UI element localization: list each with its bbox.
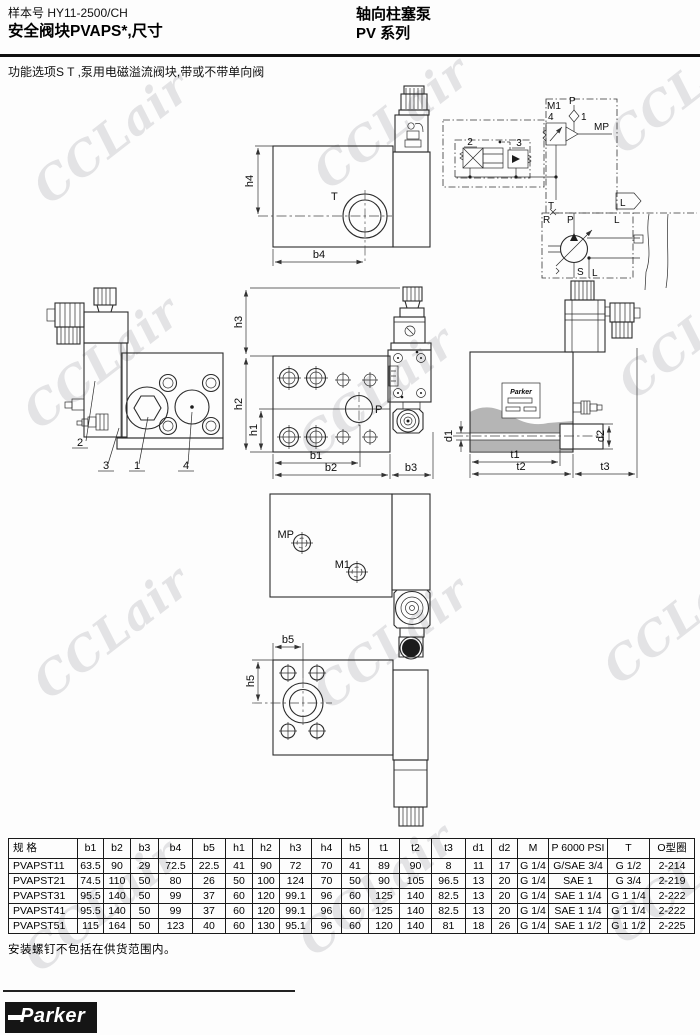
column-header: t2 [400, 839, 432, 859]
table-cell: G 3/4 [608, 874, 650, 889]
table-cell: PVAPST21 [9, 874, 78, 889]
dim-label-h5: h5 [245, 675, 257, 687]
column-header: h3 [280, 839, 312, 859]
column-header: h2 [253, 839, 280, 859]
table-cell: 140 [104, 904, 131, 919]
nameplate-brand: Parker [510, 389, 533, 396]
table-cell: 96 [312, 919, 342, 934]
table-cell: 70 [312, 859, 342, 874]
dim-label-h3: h3 [233, 316, 245, 328]
table-cell: 120 [369, 919, 400, 934]
table-cell: PVAPST31 [9, 889, 78, 904]
schematic-label-mp: MP [594, 122, 609, 133]
column-header: t3 [432, 839, 466, 859]
table-cell: 105 [400, 874, 432, 889]
schematic-label-3: 3 [516, 138, 522, 149]
table-cell: 20 [492, 904, 518, 919]
table-cell: 11 [466, 859, 492, 874]
table-cell: 110 [104, 874, 131, 889]
mounting-note: 安装螺钉不包括在供货范围内。 [8, 941, 176, 957]
table-cell: 50 [131, 889, 159, 904]
table-cell: 26 [193, 874, 226, 889]
table-cell: 70 [312, 874, 342, 889]
dim-label-d2: d2 [595, 430, 607, 442]
table-cell: 60 [342, 889, 369, 904]
table-row: PVAPST1163.5902972.522.54190727041899081… [9, 859, 695, 874]
dim-label-b5: b5 [282, 634, 294, 646]
table-cell: 2-225 [650, 919, 695, 934]
schematic-label-1: 1 [581, 112, 587, 123]
table-cell: 164 [104, 919, 131, 934]
dim-label-t1: t1 [510, 449, 519, 461]
table-cell: 120 [253, 889, 280, 904]
table-cell: 90 [369, 874, 400, 889]
column-header: T [608, 839, 650, 859]
dim-label-h2: h2 [233, 398, 245, 410]
table-cell: 125 [369, 904, 400, 919]
table-cell: 99 [159, 904, 193, 919]
table-cell: 81 [432, 919, 466, 934]
table-cell: 125 [369, 889, 400, 904]
footer-rule [3, 990, 295, 992]
table-cell: 140 [104, 889, 131, 904]
table-cell: 20 [492, 874, 518, 889]
table-cell: 74.5 [78, 874, 104, 889]
table-cell: G 1/4 [518, 919, 549, 934]
table-cell: SAE 1 1/4 [549, 904, 608, 919]
callout-label-3: 3 [103, 460, 109, 472]
table-cell: 99.1 [280, 904, 312, 919]
table-cell: 99 [159, 889, 193, 904]
table-cell: 63.5 [78, 859, 104, 874]
table-cell: G/SAE 3/4 [549, 859, 608, 874]
table-cell: 100 [253, 874, 280, 889]
table-cell: SAE 1 1/4 [549, 889, 608, 904]
table-cell: 140 [400, 904, 432, 919]
schematic-label-p2: P [567, 215, 574, 226]
schematic-label-l3: L [592, 268, 598, 279]
table-cell: 90 [253, 859, 280, 874]
page-title: 安全阀块PVAPS*,尺寸 [8, 19, 163, 41]
column-header: h5 [342, 839, 369, 859]
table-cell: 123 [159, 919, 193, 934]
table-cell: 41 [342, 859, 369, 874]
table-cell: 50 [226, 874, 253, 889]
table-cell: G 1/2 [608, 859, 650, 874]
table-cell: 18 [466, 919, 492, 934]
column-header: O型圈 [650, 839, 695, 859]
table-cell: SAE 1 1/2 [549, 919, 608, 934]
table-row: PVAPST2174.51105080265010012470509010596… [9, 874, 695, 889]
table-cell: 40 [193, 919, 226, 934]
schematic-label-s: S [577, 267, 584, 278]
callout-label-2: 2 [77, 437, 83, 449]
table-cell: 22.5 [193, 859, 226, 874]
table-cell: 82.5 [432, 904, 466, 919]
side-view-drawing: Parker d1 d2 t1 t2 t3 [443, 281, 640, 478]
table-cell: 95.5 [78, 904, 104, 919]
table-cell: 82.5 [432, 889, 466, 904]
table-cell: PVAPST11 [9, 859, 78, 874]
header-rule [0, 54, 700, 57]
table-cell: 72 [280, 859, 312, 874]
table-cell: 95.5 [78, 889, 104, 904]
table-cell: G 1/4 [518, 874, 549, 889]
table-cell: 13 [466, 874, 492, 889]
column-header: 规 格 [9, 839, 78, 859]
column-header: b3 [131, 839, 159, 859]
dim-label-h1: h1 [248, 424, 260, 436]
table-cell: G 1/4 [518, 859, 549, 874]
table-cell: 140 [400, 919, 432, 934]
center-view-drawing: P h3 h [233, 287, 433, 479]
table-cell: 99.1 [280, 889, 312, 904]
schematic-label-r: R [543, 215, 550, 226]
table-cell: 20 [492, 889, 518, 904]
column-header: b1 [78, 839, 104, 859]
table-row: PVAPST3195.51405099376012099.19660125140… [9, 889, 695, 904]
table-cell: G 1 1/4 [608, 889, 650, 904]
hydraulic-schematic: M1 P 1 4 MP 2 3 [443, 96, 697, 290]
table-cell: 90 [400, 859, 432, 874]
dim-label-h4: h4 [244, 175, 256, 187]
table-cell: 2-214 [650, 859, 695, 874]
dim-label-b2: b2 [325, 462, 337, 474]
column-header: t1 [369, 839, 400, 859]
table-cell: 130 [253, 919, 280, 934]
port-label-t: T [331, 191, 338, 203]
table-cell: PVAPST51 [9, 919, 78, 934]
table-cell: 60 [226, 919, 253, 934]
parker-logo: Parker [5, 1002, 97, 1033]
product-name: 轴向柱塞泵 [356, 3, 431, 24]
port-label-mp: MP [278, 529, 295, 541]
table-cell: 96 [312, 889, 342, 904]
catalog-page: CCLair CCLair CCLair CCLair CCLair CCLai… [0, 0, 700, 1035]
schematic-label-2: 2 [467, 137, 473, 148]
schematic-label-l2: L [614, 215, 620, 226]
table-cell: 90 [104, 859, 131, 874]
port-label-m1: M1 [335, 559, 350, 571]
table-cell: SAE 1 [549, 874, 608, 889]
table-cell: G 1 1/2 [608, 919, 650, 934]
table-cell: 140 [400, 889, 432, 904]
parker-logo-text: Parker [20, 1005, 85, 1028]
table-cell: G 1/4 [518, 889, 549, 904]
table-cell: 60 [226, 889, 253, 904]
table-cell: PVAPST41 [9, 904, 78, 919]
table-cell: 72.5 [159, 859, 193, 874]
table-cell: 80 [159, 874, 193, 889]
table-cell: 89 [369, 859, 400, 874]
table-cell: 50 [342, 874, 369, 889]
column-header: d1 [466, 839, 492, 859]
table-cell: 60 [342, 919, 369, 934]
table-cell: 50 [131, 874, 159, 889]
schematic-label-m1: M1 [547, 101, 561, 112]
table-cell: 41 [226, 859, 253, 874]
column-header: h4 [312, 839, 342, 859]
column-header: P 6000 PSI [549, 839, 608, 859]
dim-label-t2: t2 [516, 461, 525, 473]
table-cell: 124 [280, 874, 312, 889]
table-cell: 96 [312, 904, 342, 919]
port-label-p: P [375, 404, 382, 416]
table-cell: 26 [492, 919, 518, 934]
table-cell: G 1/4 [518, 904, 549, 919]
column-header: d2 [492, 839, 518, 859]
spec-table: 规 格b1b2b3b4b5h1h2h3h4h5t1t2t3d1d2MP 6000… [8, 838, 695, 934]
table-cell: 120 [253, 904, 280, 919]
table-cell: 60 [342, 904, 369, 919]
schematic-label-p: P [569, 96, 576, 107]
series-name: PV 系列 [356, 22, 410, 43]
column-header: h1 [226, 839, 253, 859]
bottom-view-drawing: b5 h5 [245, 634, 428, 826]
column-header: M [518, 839, 549, 859]
front-view-drawing: 2 3 1 4 [47, 288, 223, 472]
column-header: b5 [193, 839, 226, 859]
table-cell: 13 [466, 904, 492, 919]
table-row: PVAPST4195.51405099376012099.19660125140… [9, 904, 695, 919]
dim-label-b1: b1 [310, 450, 322, 462]
dim-label-b3: b3 [405, 462, 417, 474]
schematic-label-l-flag: L [620, 198, 626, 209]
table-cell: 13 [466, 889, 492, 904]
table-cell: 115 [78, 919, 104, 934]
column-header: b4 [159, 839, 193, 859]
top-view-drawing: T h4 b4 [244, 86, 430, 266]
table-cell: 2-222 [650, 904, 695, 919]
callout-label-4: 4 [183, 460, 189, 472]
table-cell: 17 [492, 859, 518, 874]
column-header: b2 [104, 839, 131, 859]
table-row: PVAPST5111516450123406013095.19660120140… [9, 919, 695, 934]
table-cell: 2-222 [650, 889, 695, 904]
dim-label-t3: t3 [600, 461, 609, 473]
table-cell: 50 [131, 904, 159, 919]
dim-label-d1: d1 [443, 430, 455, 442]
table-cell: 2-219 [650, 874, 695, 889]
table-cell: 60 [226, 904, 253, 919]
function-option-text: 功能选项S T ,泵用电磁溢流阀块,带或不带单向阀 [8, 63, 264, 80]
callout-label-1: 1 [134, 460, 140, 472]
table-cell: 96.5 [432, 874, 466, 889]
schematic-label-4: 4 [548, 112, 554, 123]
table-cell: 29 [131, 859, 159, 874]
table-cell: 50 [131, 919, 159, 934]
table-cell: G 1 1/4 [608, 904, 650, 919]
dim-label-b4: b4 [313, 249, 325, 261]
table-cell: 37 [193, 889, 226, 904]
table-cell: 8 [432, 859, 466, 874]
table-cell: 37 [193, 904, 226, 919]
table-cell: 95.1 [280, 919, 312, 934]
